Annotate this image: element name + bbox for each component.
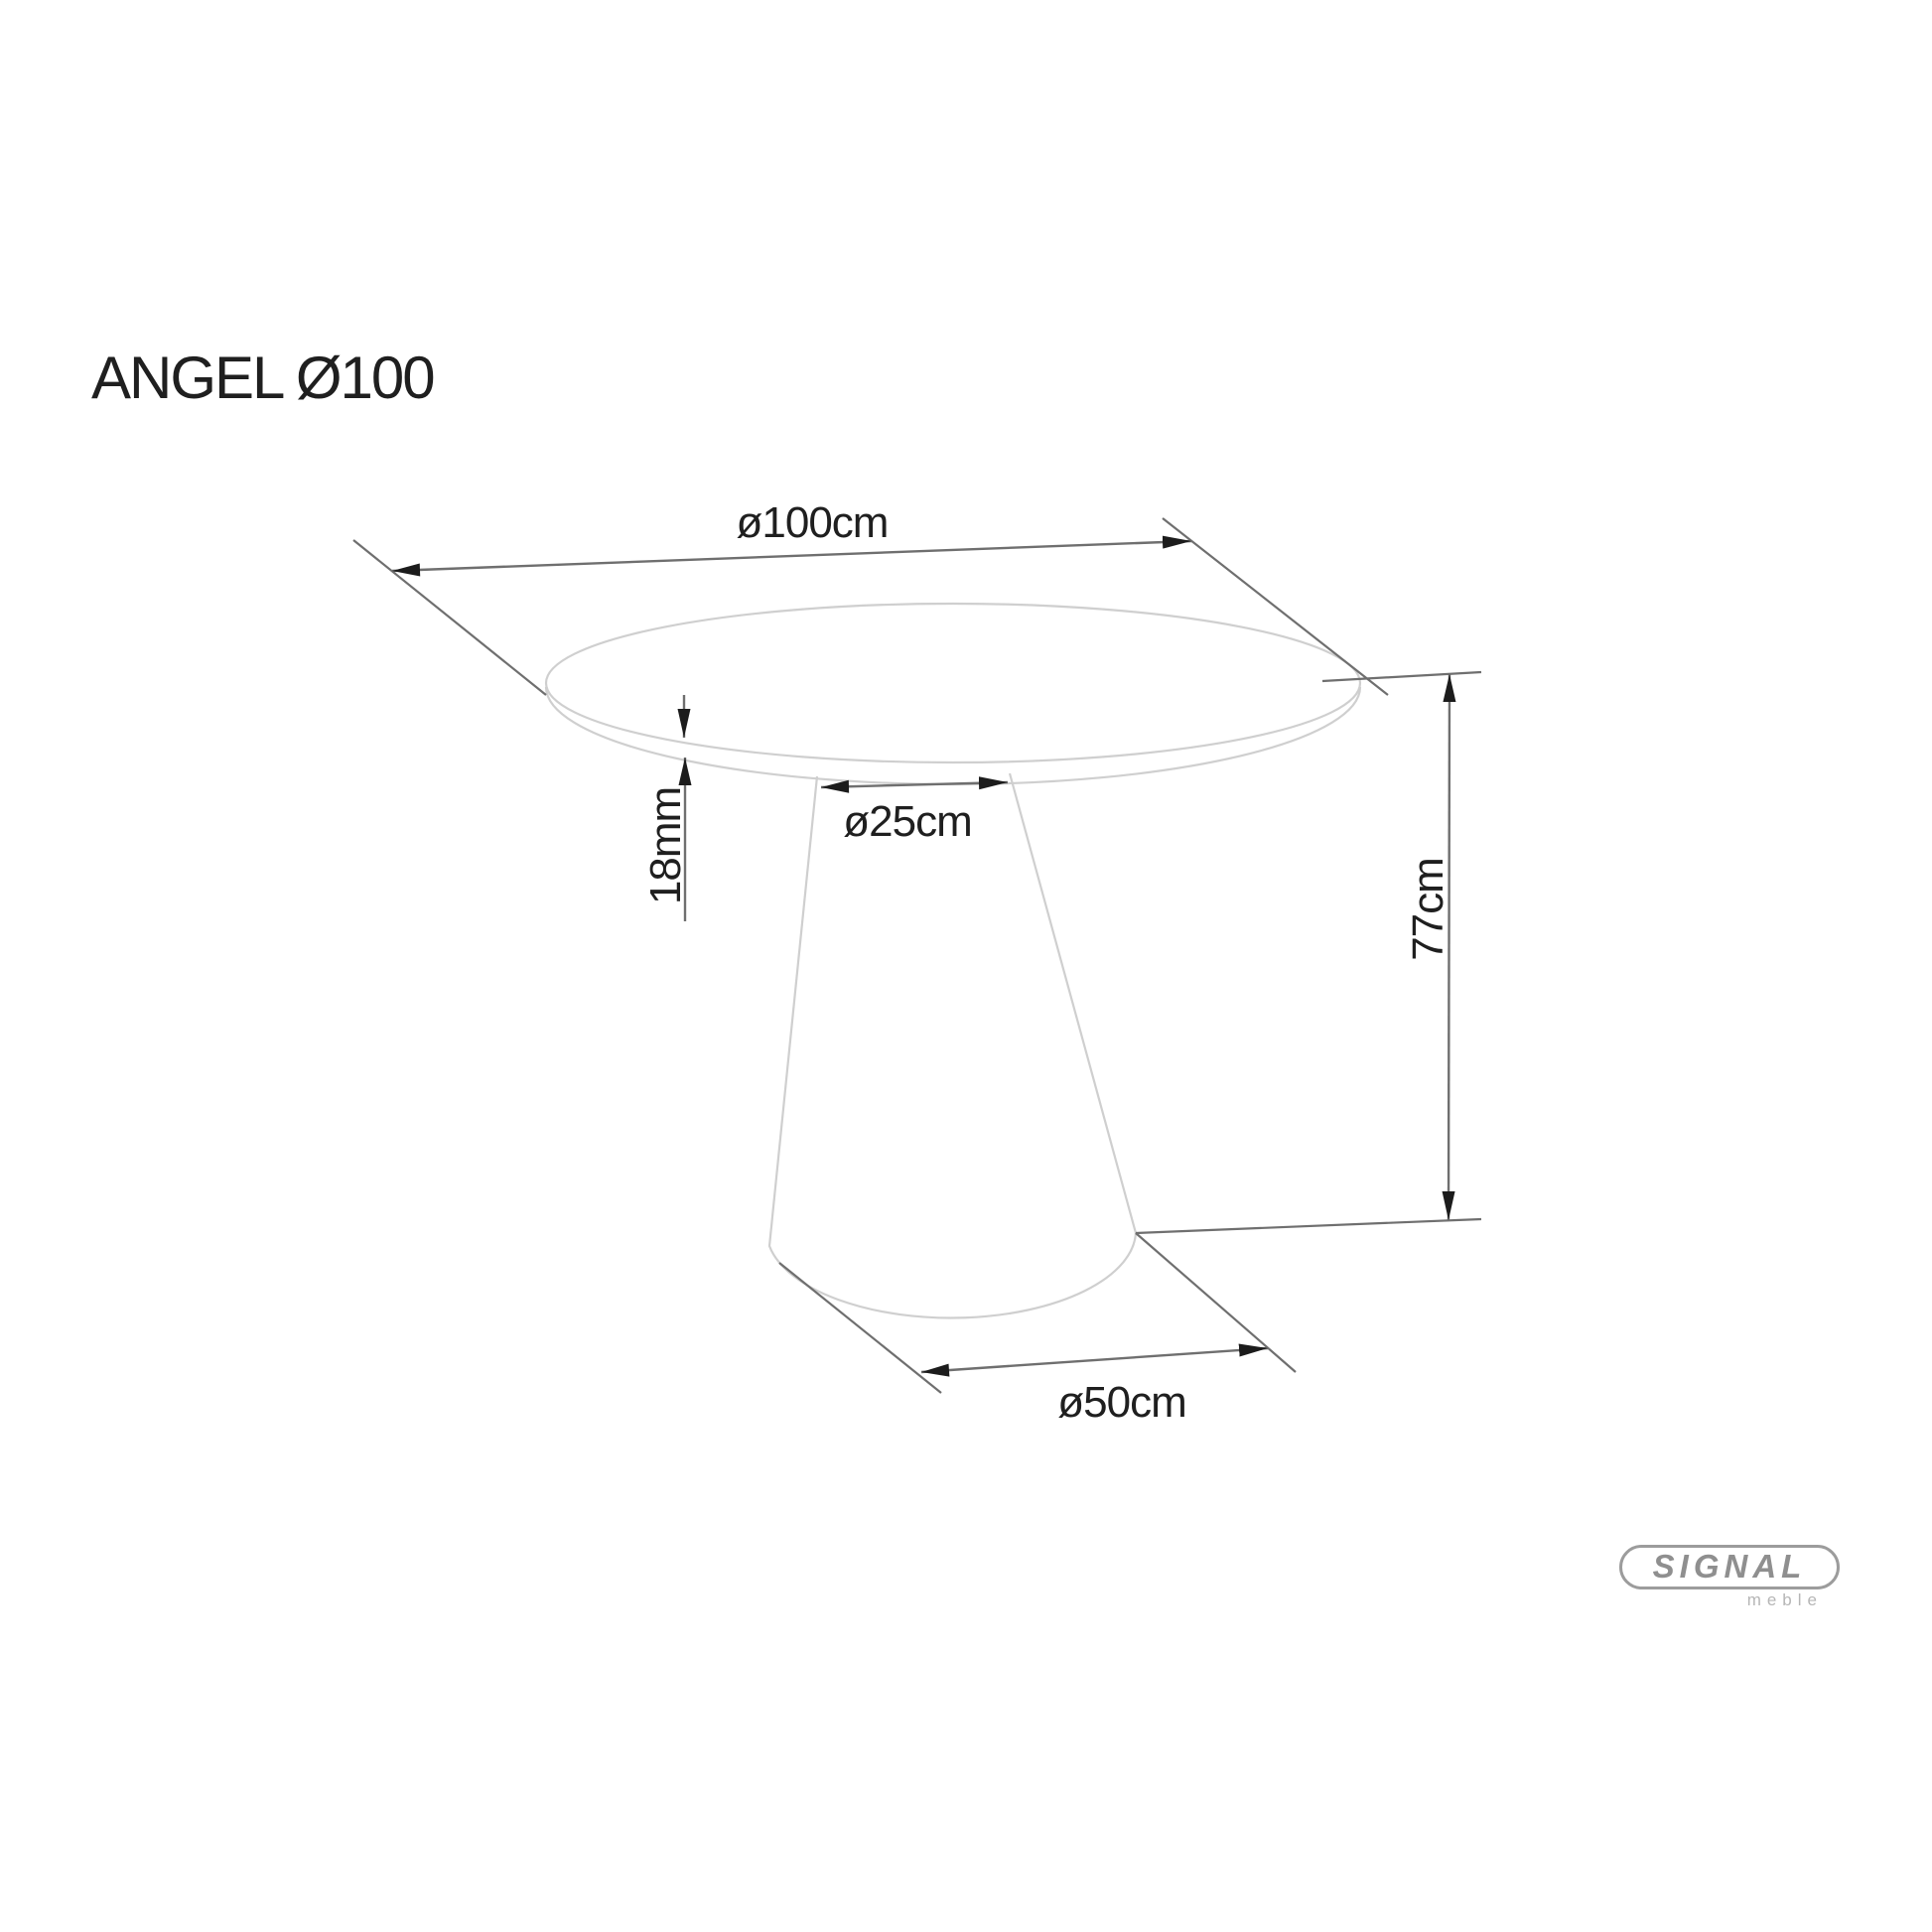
label-top-thickness: 18mm: [641, 787, 690, 904]
table-outline: [546, 604, 1360, 1317]
ext-top-left: [353, 540, 546, 695]
dimension-lines: [392, 541, 1449, 1372]
dim-base-diameter-line: [921, 1348, 1268, 1372]
tabletop-rim-edge: [546, 687, 1360, 784]
pedestal-cone: [769, 773, 1136, 1317]
label-height: 77cm: [1404, 858, 1452, 961]
brand-logo: SIGNAL meble: [1619, 1545, 1840, 1610]
ext-height-bottom: [1136, 1219, 1481, 1233]
dimension-labels: ø100cm ø25cm 18mm 77cm ø50cm: [641, 498, 1452, 1427]
logo-subtitle-text: meble: [1619, 1590, 1823, 1610]
label-top-diameter: ø100cm: [737, 498, 889, 547]
drawing-canvas: ANGEL Ø100: [0, 0, 1932, 1932]
ext-height-top: [1322, 672, 1481, 681]
extension-lines: [353, 518, 1481, 1393]
ext-top-right: [1163, 518, 1388, 695]
technical-drawing: ø100cm ø25cm 18mm 77cm ø50cm: [0, 0, 1932, 1932]
logo-border: SIGNAL: [1619, 1545, 1840, 1589]
label-column-diameter: ø25cm: [843, 797, 971, 846]
ext-base-left: [779, 1263, 941, 1393]
tabletop-top-ellipse: [546, 604, 1360, 762]
logo-brand-text: SIGNAL: [1653, 1550, 1807, 1583]
label-base-diameter: ø50cm: [1057, 1378, 1185, 1427]
